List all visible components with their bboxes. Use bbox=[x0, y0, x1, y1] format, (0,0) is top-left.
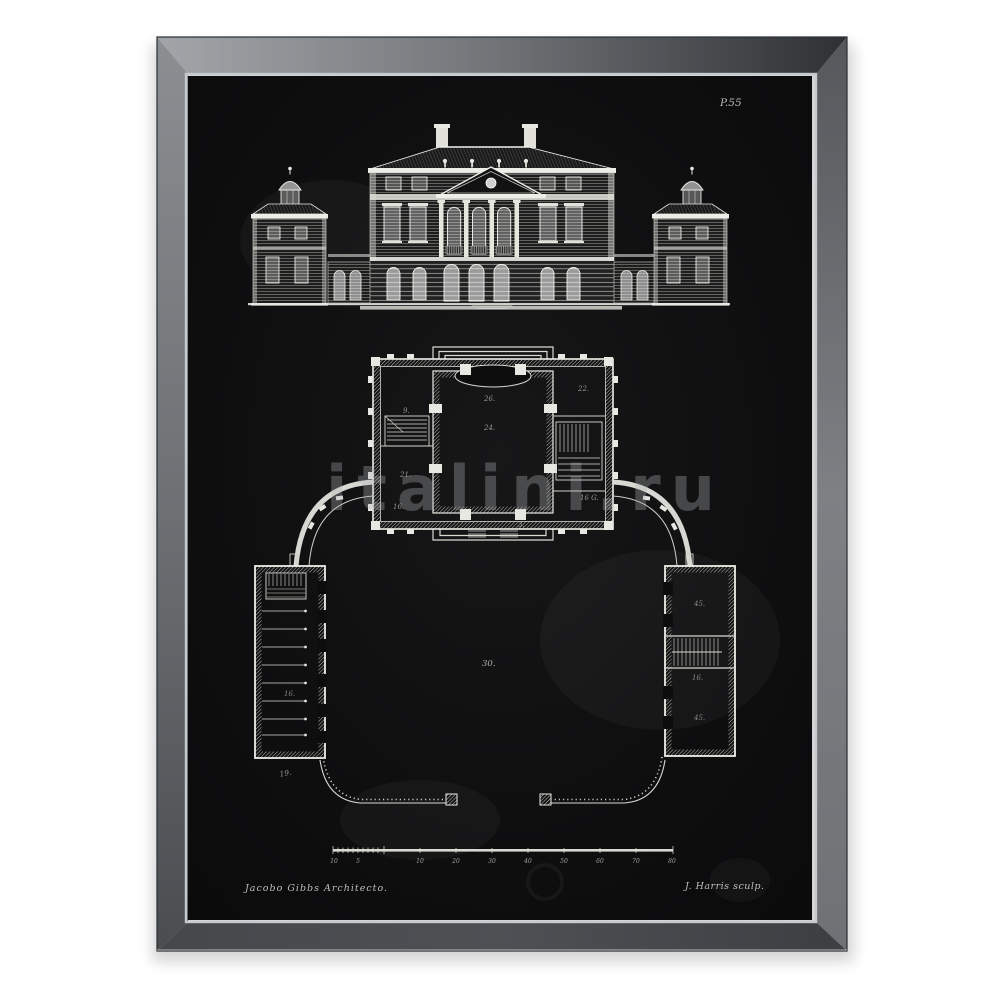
portico bbox=[438, 200, 521, 257]
room-number: 16. bbox=[692, 674, 703, 682]
gate-pier-left bbox=[446, 794, 457, 805]
scale-label: 5 bbox=[356, 858, 360, 865]
frame-top-face bbox=[157, 37, 847, 74]
chimney-left bbox=[436, 126, 448, 148]
string-course bbox=[370, 257, 614, 261]
plate-number: P.55 bbox=[719, 97, 742, 109]
courtyard-number: 30. bbox=[482, 659, 496, 669]
site-watermark: italini.ru bbox=[326, 452, 725, 525]
cupola-finial bbox=[690, 167, 694, 171]
credit-architect: Jacobo Gibbs Architecto. bbox=[243, 883, 388, 894]
frame-bottom-face bbox=[157, 922, 847, 951]
room-number: 24. bbox=[483, 424, 495, 432]
room-number: 16. bbox=[284, 690, 295, 698]
balconies bbox=[446, 246, 512, 254]
scale-label: 20 bbox=[451, 858, 460, 865]
base-platform bbox=[360, 306, 622, 310]
pediment-oculus bbox=[486, 178, 496, 188]
frame-right-face bbox=[816, 37, 847, 951]
scale-label: 10 bbox=[416, 858, 424, 865]
chimney-cap-right bbox=[522, 124, 538, 128]
scale-label: 60 bbox=[596, 858, 604, 865]
scale-label: 50 bbox=[560, 858, 568, 865]
room-number: 45. bbox=[693, 600, 705, 608]
scale-label: 80 bbox=[668, 858, 676, 865]
scale-label: 40 bbox=[523, 858, 532, 865]
room-number: 26. bbox=[483, 395, 495, 403]
cupola-drum bbox=[281, 190, 299, 205]
scale-label: 30 bbox=[488, 858, 496, 865]
cupola-drum bbox=[683, 190, 701, 205]
frame-left-face bbox=[157, 37, 188, 951]
scene: P.55 bbox=[0, 0, 1000, 1000]
chimney-right bbox=[524, 126, 536, 148]
credit-engraver: J. Harris sculp. bbox=[683, 881, 765, 892]
chimney-cap-left bbox=[434, 124, 450, 128]
room-number: 9. bbox=[403, 407, 410, 415]
basement-arches bbox=[387, 265, 580, 302]
room-number: 45. bbox=[693, 714, 705, 722]
scale-label: 10 bbox=[330, 858, 338, 865]
scale-label: 70 bbox=[632, 858, 640, 865]
cupola-finial bbox=[288, 167, 292, 171]
framed-print-photo: P.55 bbox=[0, 0, 1000, 1000]
gate-pier-right bbox=[540, 794, 551, 805]
room-number: 22. bbox=[577, 385, 589, 393]
